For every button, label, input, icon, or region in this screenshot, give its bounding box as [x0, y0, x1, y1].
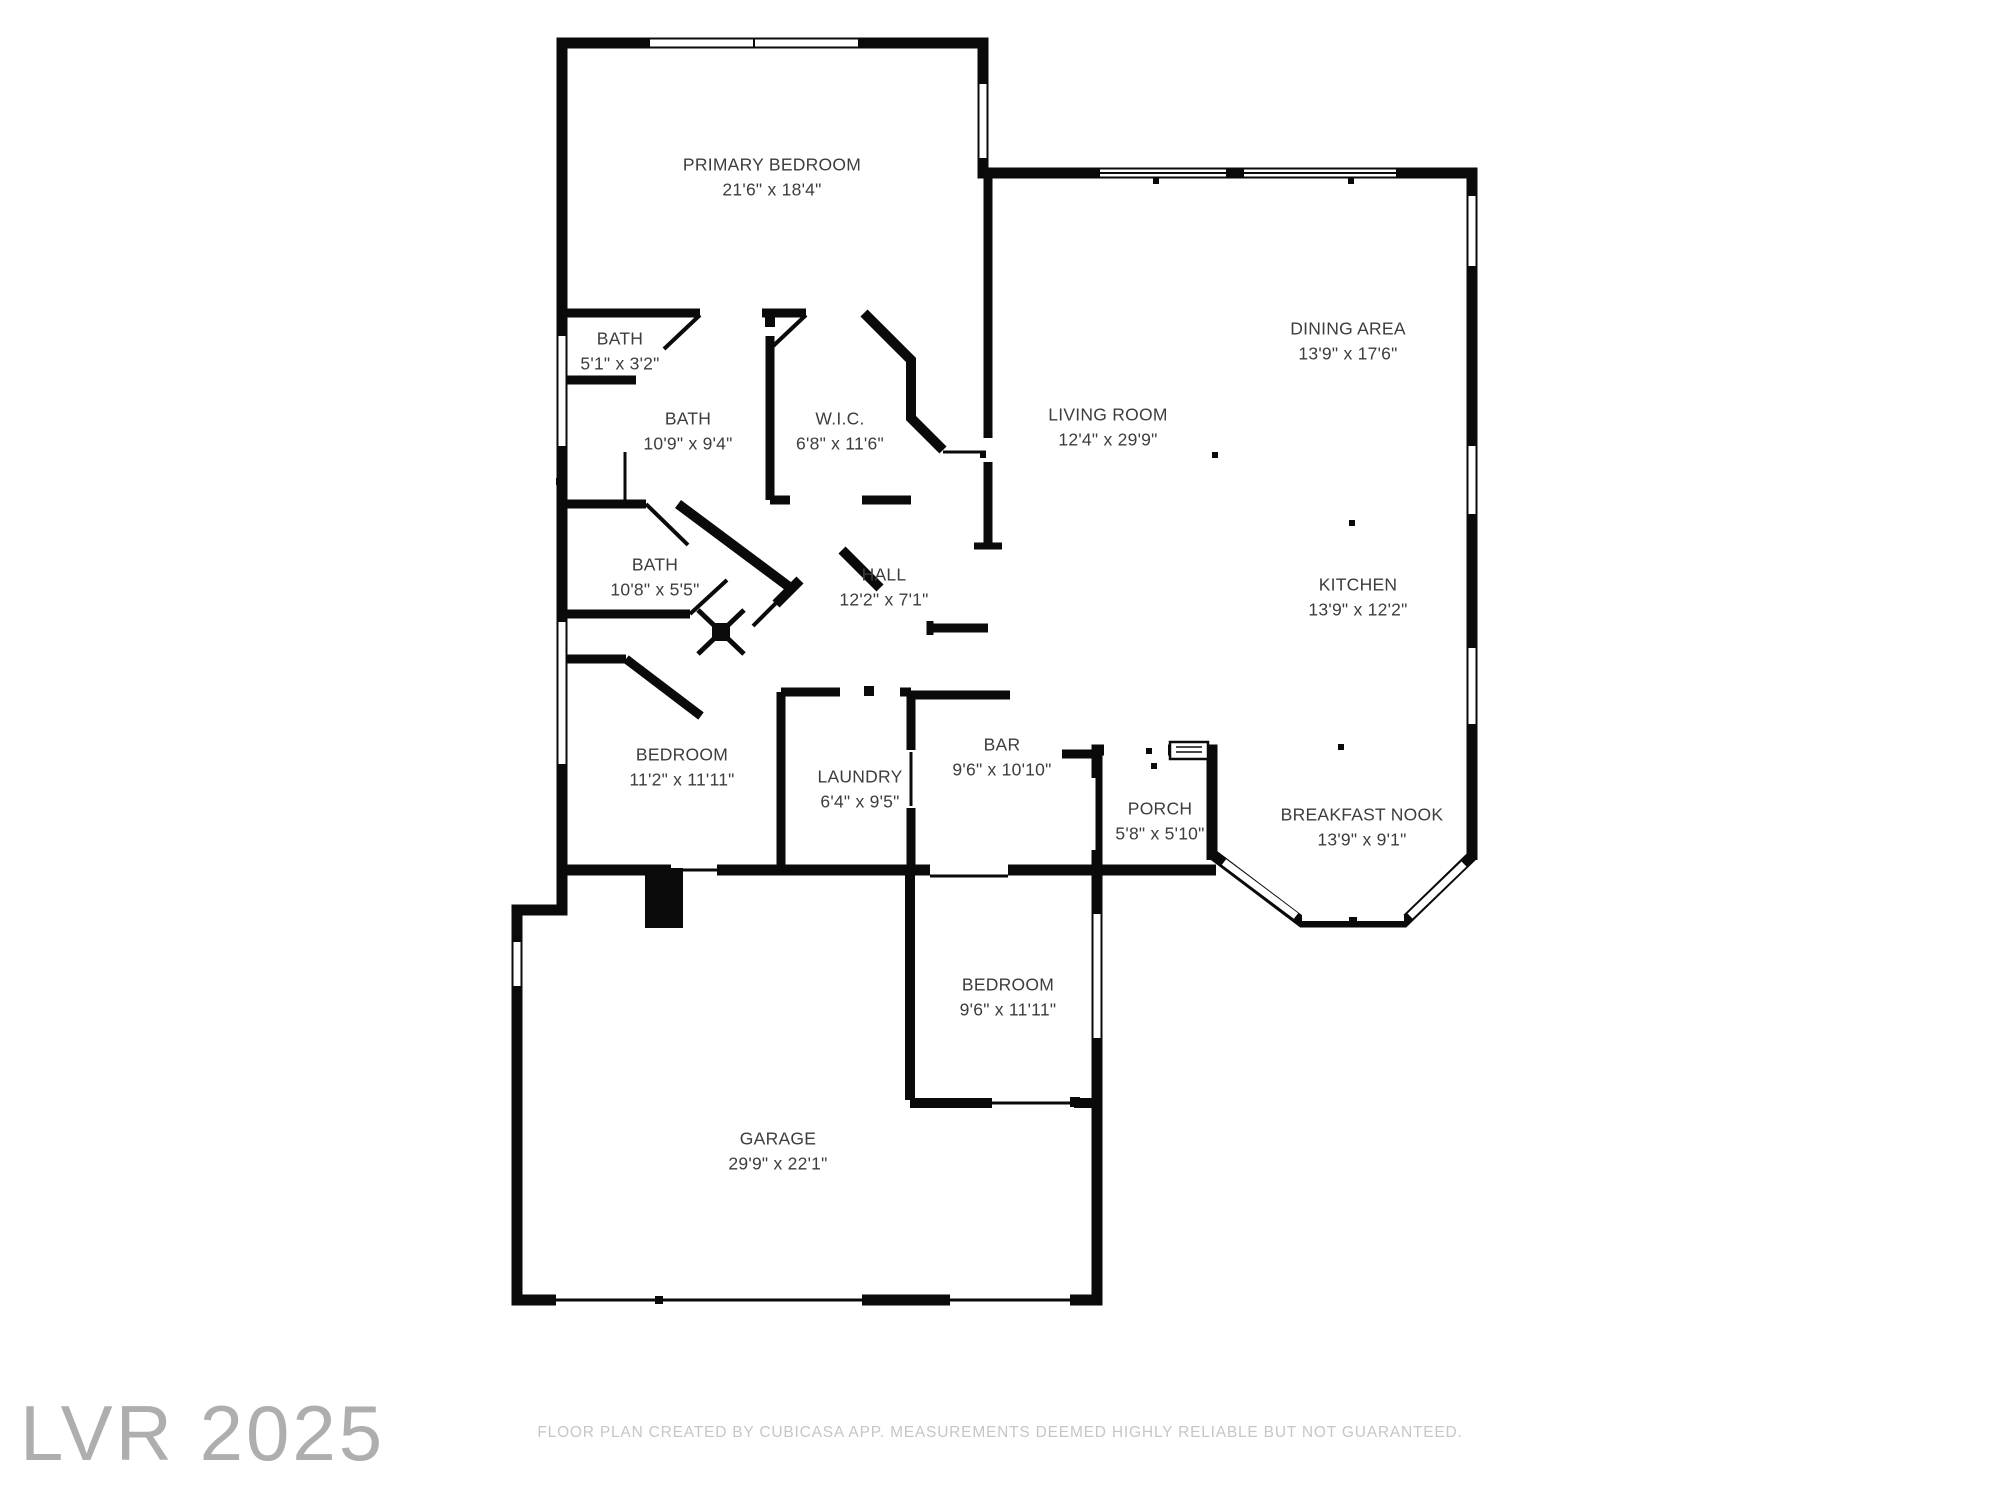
room-dims: 10'9" x 9'4"	[643, 432, 732, 457]
room-name: BEDROOM	[960, 973, 1057, 998]
room-name: KITCHEN	[1308, 573, 1407, 598]
room-name: GARAGE	[728, 1127, 827, 1152]
room-label-bedroom-west: BEDROOM 11'2" x 11'11"	[629, 743, 734, 794]
room-dims: 5'8" x 5'10"	[1115, 822, 1204, 847]
room-label-bath-small: BATH 5'1" x 3'2"	[580, 327, 659, 378]
room-label-garage: GARAGE 29'9" x 22'1"	[728, 1127, 827, 1178]
room-dims: 11'2" x 11'11"	[629, 768, 734, 793]
room-dims: 13'9" x 9'1"	[1281, 828, 1444, 853]
room-name: LIVING ROOM	[1048, 403, 1167, 428]
room-label-living-room: LIVING ROOM 12'4" x 29'9"	[1048, 403, 1167, 454]
room-dims: 9'6" x 11'11"	[960, 998, 1057, 1023]
room-dims: 12'4" x 29'9"	[1048, 428, 1167, 453]
room-label-bar: BAR 9'6" x 10'10"	[952, 733, 1051, 784]
room-name: BAR	[952, 733, 1051, 758]
room-name: BATH	[643, 407, 732, 432]
room-label-primary-bedroom: PRIMARY BEDROOM 21'6" x 18'4"	[683, 153, 861, 204]
room-name: DINING AREA	[1290, 317, 1406, 342]
room-label-laundry: LAUNDRY 6'4" x 9'5"	[817, 765, 902, 816]
room-name: BATH	[580, 327, 659, 352]
room-dims: 5'1" x 3'2"	[580, 352, 659, 377]
footer-disclaimer: FLOOR PLAN CREATED BY CUBICASA APP. MEAS…	[0, 1424, 2000, 1442]
room-name: PORCH	[1115, 797, 1204, 822]
room-dims: 13'9" x 12'2"	[1308, 598, 1407, 623]
room-name: HALL	[839, 563, 928, 588]
room-name: BREAKFAST NOOK	[1281, 803, 1444, 828]
room-label-dining-area: DINING AREA 13'9" x 17'6"	[1290, 317, 1406, 368]
room-name: BATH	[610, 553, 699, 578]
room-dims: 10'8" x 5'5"	[610, 578, 699, 603]
room-dims: 29'9" x 22'1"	[728, 1152, 827, 1177]
room-dims: 13'9" x 17'6"	[1290, 342, 1406, 367]
room-label-bedroom-south: BEDROOM 9'6" x 11'11"	[960, 973, 1057, 1024]
exterior-walls	[517, 43, 1472, 1300]
room-label-breakfast-nook: BREAKFAST NOOK 13'9" x 9'1"	[1281, 803, 1444, 854]
room-dims: 6'4" x 9'5"	[817, 790, 902, 815]
room-dims: 21'6" x 18'4"	[683, 178, 861, 203]
room-name: BEDROOM	[629, 743, 734, 768]
room-dims: 9'6" x 10'10"	[952, 758, 1051, 783]
room-name: LAUNDRY	[817, 765, 902, 790]
vent-icon	[1170, 742, 1208, 759]
room-label-hall: HALL 12'2" x 7'1"	[839, 563, 928, 614]
room-name: W.I.C.	[796, 407, 884, 432]
chimney-block	[645, 868, 683, 928]
room-label-bath-hall: BATH 10'8" x 5'5"	[610, 553, 699, 604]
room-name: PRIMARY BEDROOM	[683, 153, 861, 178]
interior-walls	[557, 173, 1097, 1103]
room-dims: 12'2" x 7'1"	[839, 588, 928, 613]
door-pivot-block	[712, 623, 730, 641]
room-label-wic: W.I.C. 6'8" x 11'6"	[796, 407, 884, 458]
room-dims: 6'8" x 11'6"	[796, 432, 884, 457]
room-label-kitchen: KITCHEN 13'9" x 12'2"	[1308, 573, 1407, 624]
room-label-porch: PORCH 5'8" x 5'10"	[1115, 797, 1204, 848]
floorplan-page: PRIMARY BEDROOM 21'6" x 18'4" BATH 5'1" …	[0, 0, 2000, 1500]
room-label-bath-primary: BATH 10'9" x 9'4"	[643, 407, 732, 458]
